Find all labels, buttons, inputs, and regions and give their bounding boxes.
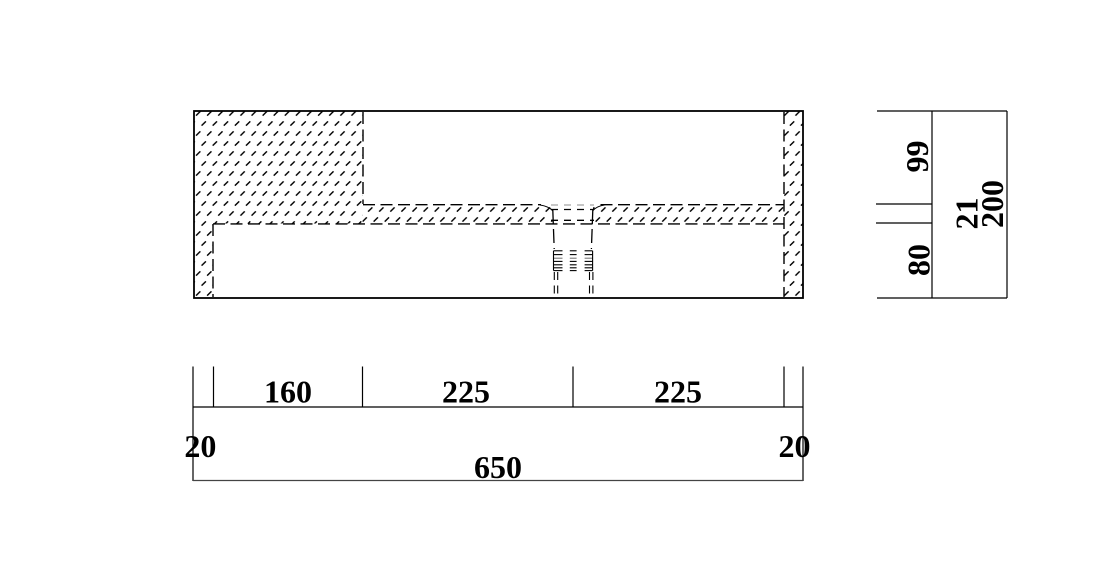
svg-text:99: 99 [899,141,935,173]
svg-text:200: 200 [974,180,1010,228]
svg-text:225: 225 [654,374,702,410]
svg-text:650: 650 [474,449,522,485]
svg-text:160: 160 [264,374,312,410]
svg-text:20: 20 [779,428,811,464]
svg-text:20: 20 [184,428,216,464]
svg-text:80: 80 [901,244,937,276]
svg-text:225: 225 [442,374,490,410]
